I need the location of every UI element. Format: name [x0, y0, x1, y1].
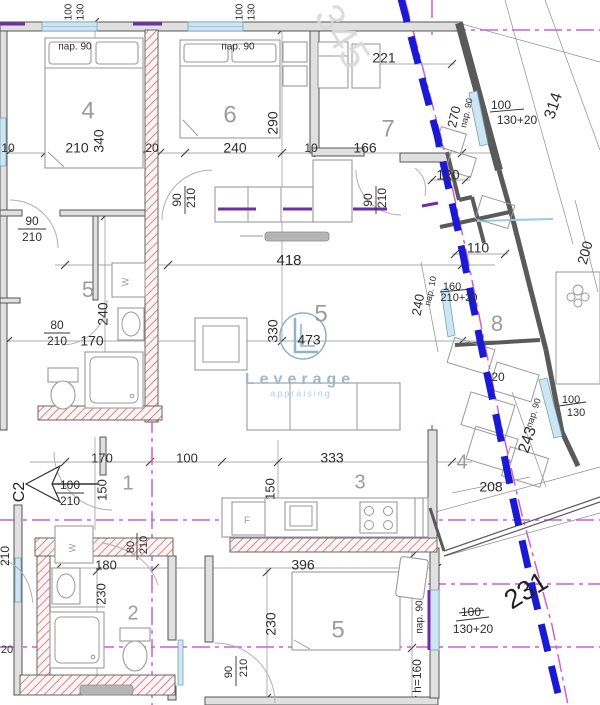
- room-number: 7: [381, 115, 394, 142]
- dim-label: 10: [1, 141, 15, 155]
- pillow: [96, 42, 138, 64]
- room-number: 3: [354, 471, 365, 493]
- bed: [292, 572, 400, 650]
- plan-annotation: 231: [499, 566, 553, 615]
- nightstand: [283, 66, 307, 86]
- shower: [50, 612, 104, 668]
- dim-label: 210: [375, 188, 389, 208]
- dim-label: 166: [353, 140, 377, 156]
- dim-label: 80: [125, 541, 137, 553]
- dim-label: 314: [542, 90, 566, 121]
- brand-wordmark: Leverage: [245, 371, 355, 388]
- dim-label: h=160: [410, 659, 424, 693]
- dim-label: 333: [320, 450, 344, 466]
- nightstand: [283, 42, 307, 62]
- room-number: 2: [127, 602, 138, 624]
- dim-label: 150: [94, 479, 109, 501]
- room-number: 5: [331, 616, 344, 643]
- dim-label: 210: [184, 188, 198, 208]
- dim-label: 473: [297, 332, 321, 348]
- dim-label: 210: [238, 659, 250, 677]
- room-number: 1: [122, 472, 133, 494]
- dim-label: 100: [60, 478, 80, 492]
- neighbor-terrace: [556, 272, 600, 384]
- dim-label: 230: [263, 612, 279, 636]
- toilet: [48, 368, 78, 382]
- room-number: 4: [81, 97, 94, 124]
- brand-tagline: appraising: [270, 388, 332, 398]
- floor-plan-page: 100130100130пар. 90пар. 9046721034010202…: [0, 0, 600, 705]
- room-number: 4: [456, 451, 467, 473]
- room-number: 8: [491, 311, 503, 336]
- cabinet: [313, 160, 352, 222]
- radiator: [265, 232, 329, 241]
- dim-label: 208: [479, 479, 503, 495]
- dim-label: пар. 90: [524, 397, 543, 429]
- room-number: W: [67, 543, 77, 552]
- dim-label: 130: [247, 3, 258, 20]
- radiator: [80, 685, 133, 695]
- dim-label: 90: [223, 666, 235, 678]
- dim-label: 150: [262, 478, 277, 500]
- dim-label: 330: [265, 319, 281, 343]
- dim-label: 210: [0, 546, 12, 566]
- dim-label: 396: [291, 557, 315, 573]
- dim-label: 90: [361, 193, 375, 207]
- dim-label: 10: [304, 141, 318, 155]
- dim-label: 210: [22, 230, 42, 244]
- pillow: [395, 556, 428, 600]
- dim-label: 130+20: [453, 622, 494, 636]
- toilet-bowl: [123, 641, 147, 671]
- toilet-bowl: [51, 381, 75, 409]
- dim-label: 290: [265, 111, 281, 135]
- shower: [85, 352, 143, 408]
- dim-label: 100: [235, 3, 246, 20]
- dim-label: 90: [25, 214, 39, 228]
- floor-plan-svg: 100130100130пар. 90пар. 9046721034010202…: [0, 0, 600, 705]
- room-number: F: [244, 516, 250, 527]
- dim-label: 170: [80, 333, 104, 349]
- dim-label: 230: [93, 583, 108, 605]
- dim-label: 210: [60, 494, 80, 508]
- wardrobe: [215, 187, 313, 222]
- dim-label: 80: [50, 318, 64, 332]
- dim-label: 100: [461, 605, 481, 619]
- dim-label: 20: [491, 370, 505, 384]
- dim-label: 90: [170, 193, 184, 207]
- dim-label: 20: [1, 644, 13, 656]
- dim-label: 100: [176, 450, 198, 465]
- dim-label: 130: [76, 3, 87, 20]
- toilet: [120, 628, 150, 641]
- dim-label: пар. 90: [415, 600, 426, 634]
- dim-label: 418: [276, 252, 301, 269]
- dim-label: пар. 90: [58, 42, 92, 53]
- dim-label: 210: [47, 334, 67, 348]
- bathroom-sink: [52, 568, 80, 604]
- dim-label: 100: [491, 98, 511, 112]
- dim-label: 210: [138, 536, 150, 554]
- room-number: 5: [82, 277, 94, 302]
- dim-label: пар. 90: [221, 42, 255, 53]
- dim-label: пар. 90: [458, 97, 474, 128]
- dim-label: 200: [574, 239, 596, 266]
- dim-label: 240: [409, 293, 428, 317]
- room-number: 5: [314, 300, 327, 327]
- dim-label: 210+20: [440, 292, 477, 304]
- room-number: W: [120, 277, 130, 286]
- dim-label: 120: [436, 167, 460, 183]
- dim-label: 180: [95, 557, 117, 572]
- window: [430, 590, 439, 650]
- dim-label: 243: [516, 424, 540, 455]
- dim-label: 240: [95, 302, 111, 326]
- dim-label: 240: [223, 140, 247, 156]
- plan-annotation: C2: [11, 482, 28, 503]
- dim-label: 210: [65, 140, 89, 156]
- dim-label: 340: [91, 129, 107, 153]
- dim-label: 130: [567, 407, 585, 419]
- dim-label: 100: [64, 3, 75, 20]
- dim-label: 110: [467, 240, 490, 256]
- room-number: 6: [223, 101, 236, 128]
- plant-icon: [567, 285, 589, 307]
- dim-label: 130+20: [497, 113, 538, 127]
- dim-label: 100: [562, 394, 580, 406]
- dim-label: 170: [91, 450, 113, 465]
- dim-label: 20: [145, 141, 159, 155]
